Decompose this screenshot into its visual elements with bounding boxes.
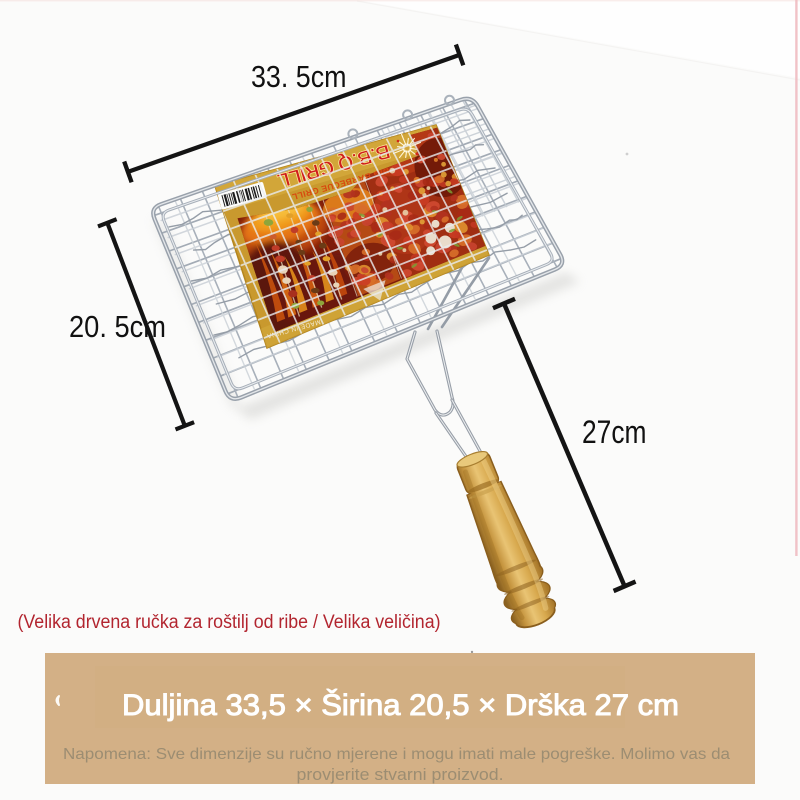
svg-text:27cm: 27cm [582, 414, 647, 450]
svg-text:Napomena: Sve dimenzije su ruč: Napomena: Sve dimenzije su ručno mjerene… [63, 746, 730, 763]
svg-text:(Velika drvena ručka za roštil: (Velika drvena ručka za roštilj od ribe … [18, 612, 441, 633]
svg-text:provjerite stvarni proizvod.: provjerite stvarni proizvod. [297, 766, 504, 784]
svg-text:33. 5cm: 33. 5cm [251, 59, 347, 94]
svg-text:Duljina 33,5 × Širina 20,5 × D: Duljina 33,5 × Širina 20,5 × Drška 27 cm [122, 688, 679, 722]
svg-text:20. 5cm: 20. 5cm [69, 309, 166, 344]
